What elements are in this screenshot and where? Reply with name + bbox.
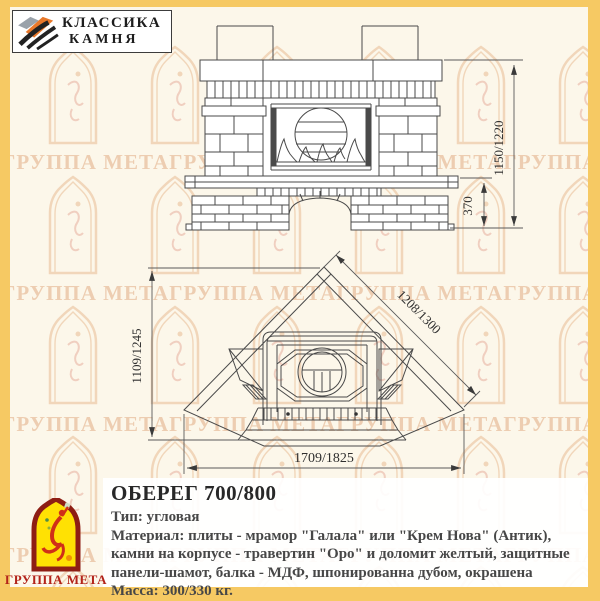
dim-plan-width: 1709/1825: [294, 451, 354, 466]
product-material-line3: панели-шамот, балка - МДФ, шпонированна …: [111, 564, 581, 583]
top-logo-line1: КЛАССИКА: [62, 16, 161, 31]
top-logo-text: КЛАССИКА КАМНЯ: [62, 16, 161, 47]
front-elevation: [185, 26, 458, 230]
top-logo-line2: КАМНЯ: [62, 33, 161, 47]
product-type: Тип: угловая: [111, 508, 581, 527]
dim-plan-depth: 1109/1245: [129, 328, 144, 383]
plan-view: [184, 267, 464, 446]
dim-hearth-height: 370: [460, 196, 475, 216]
product-title: ОБЕРЕГ 700/800: [111, 481, 581, 506]
product-info: ОБЕРЕГ 700/800 Тип: угловая Материал: пл…: [111, 481, 581, 601]
stone-classic-logo-icon: [16, 14, 60, 50]
top-logo: КЛАССИКА КАМНЯ: [12, 10, 172, 53]
dim-plan-side: 1208/1300: [394, 287, 444, 337]
group-meta-logo-icon: [31, 498, 81, 572]
product-material-line2: камни на корпусе - травертин "Оро" и дол…: [111, 545, 581, 564]
group-meta-logo-text: ГРУППА МЕТА: [4, 572, 108, 588]
product-mass: Масса: 300/330 кг.: [111, 582, 581, 601]
dim-elevation-height: 1150/1220: [491, 120, 506, 175]
page: { "colors": { "frame_yellow": "#f6c963",…: [0, 0, 600, 600]
product-material-line1: Материал: плиты - мрамор "Галала" или "К…: [111, 527, 581, 546]
